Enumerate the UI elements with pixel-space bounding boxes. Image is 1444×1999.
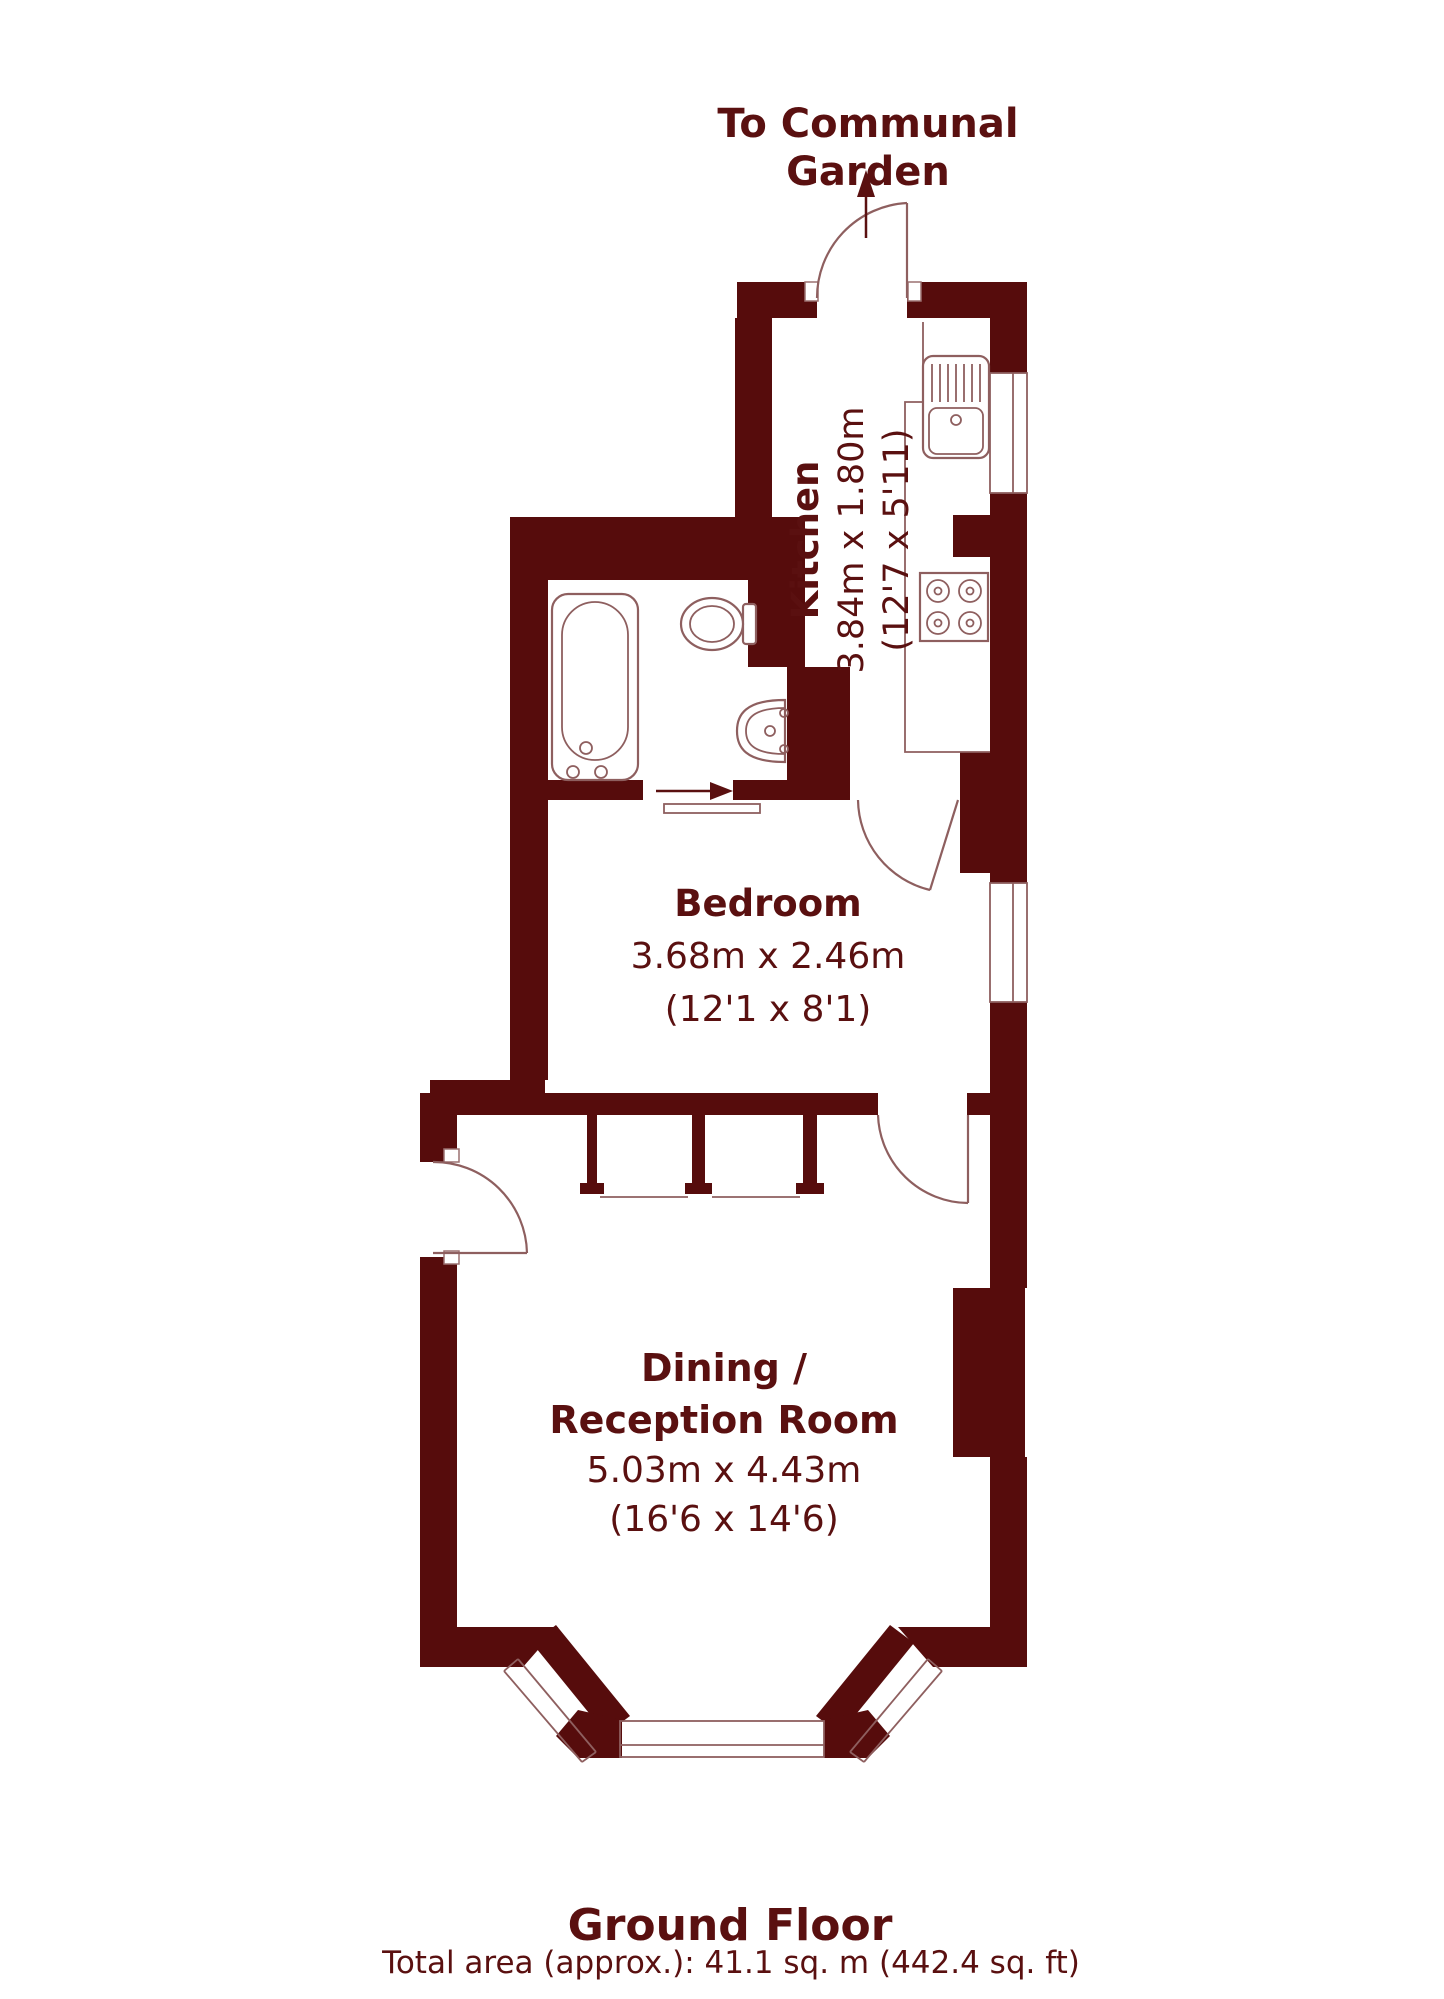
toilet-icon [681, 598, 756, 650]
wall-dining-right-upper [990, 1002, 1027, 1288]
garden-door [817, 203, 907, 298]
bedroom-dims-ft: (12'1 x 8'1) [665, 989, 872, 1030]
dining-label-line2: Reception Room [549, 1398, 898, 1442]
bedroom-door [858, 800, 958, 890]
bathroom-fixtures [552, 594, 788, 780]
wall-bedroom-dining-divider [420, 1093, 878, 1115]
basin-icon [737, 700, 788, 762]
alcove-partition-3 [803, 1115, 817, 1183]
wall-kitchen-right-mid [990, 493, 1027, 515]
wall-bathroom-bottom-right [733, 780, 850, 800]
dining-dims-ft: (16'6 x 14'6) [609, 1499, 839, 1540]
kitchen-window [990, 373, 1027, 493]
alcove-partition-3-foot [796, 1183, 824, 1194]
floor-plan-svg: To Communal Garden Kitchen 3.84m x 1.80m… [0, 0, 1444, 1999]
wall-kitchen-right-upper [990, 318, 1027, 373]
floor-title: Ground Floor [568, 1900, 893, 1951]
total-area: Total area (approx.): 41.1 sq. m (442.4 … [381, 1945, 1080, 1981]
bedroom-dims-m: 3.68m x 2.46m [631, 936, 906, 977]
kitchen-dims-ft: (12'7 x 5'11) [877, 428, 917, 651]
wall-kitchen-right-lower [990, 557, 1027, 752]
bathtub-icon [552, 594, 638, 780]
dining-label-line1: Dining / [641, 1346, 807, 1390]
bedroom-label: Bedroom [674, 882, 861, 925]
garden-label-line1: To Communal [717, 101, 1018, 147]
alcove-partition-1-foot [580, 1183, 604, 1194]
wall-bathroom-top [510, 517, 805, 580]
dining-door [878, 1115, 968, 1203]
hob-icon [920, 573, 988, 641]
kitchen-dims-m: 3.84m x 1.80m [832, 406, 872, 673]
kitchen-sink-icon [923, 356, 989, 458]
garden-label-line2: Garden [786, 149, 950, 195]
wall-dining-left-lower [420, 1257, 457, 1627]
floor-plan-page: To Communal Garden Kitchen 3.84m x 1.80m… [0, 0, 1444, 1999]
alcove-partition-2-foot [685, 1183, 712, 1194]
wall-kitchen-left [735, 318, 772, 517]
bay-front-window [620, 1721, 824, 1757]
wall-kitchen-pier [953, 515, 1027, 557]
wall-hall-right-chunk [960, 752, 1027, 873]
sliding-door-panel [664, 804, 760, 813]
wall-bedroom-left [510, 580, 548, 1080]
bedroom-window [990, 883, 1027, 1002]
garden-door-jamb-right [908, 282, 921, 301]
wall-top-right-stub [907, 282, 1027, 318]
wall-bay-right-band [898, 1627, 1027, 1667]
wall-dining-door-jamb [967, 1093, 990, 1115]
wall-divider-step [430, 1080, 545, 1093]
wall-bathroom-kitchen-divider-lower [787, 667, 850, 782]
wall-dining-pier [953, 1288, 1025, 1457]
wall-dining-right-lower [990, 1457, 1027, 1630]
wall-above-bedroom-window [990, 873, 1027, 883]
kitchen-label: Kitchen [784, 461, 827, 620]
garden-door-jamb-left [805, 282, 818, 301]
entrance-door [433, 1162, 527, 1253]
alcove-partition-2 [692, 1115, 705, 1183]
dining-dims-m: 5.03m x 4.43m [587, 1450, 862, 1491]
alcove-partition-1 [587, 1115, 597, 1183]
entrance-door-jamb-top [444, 1149, 459, 1162]
